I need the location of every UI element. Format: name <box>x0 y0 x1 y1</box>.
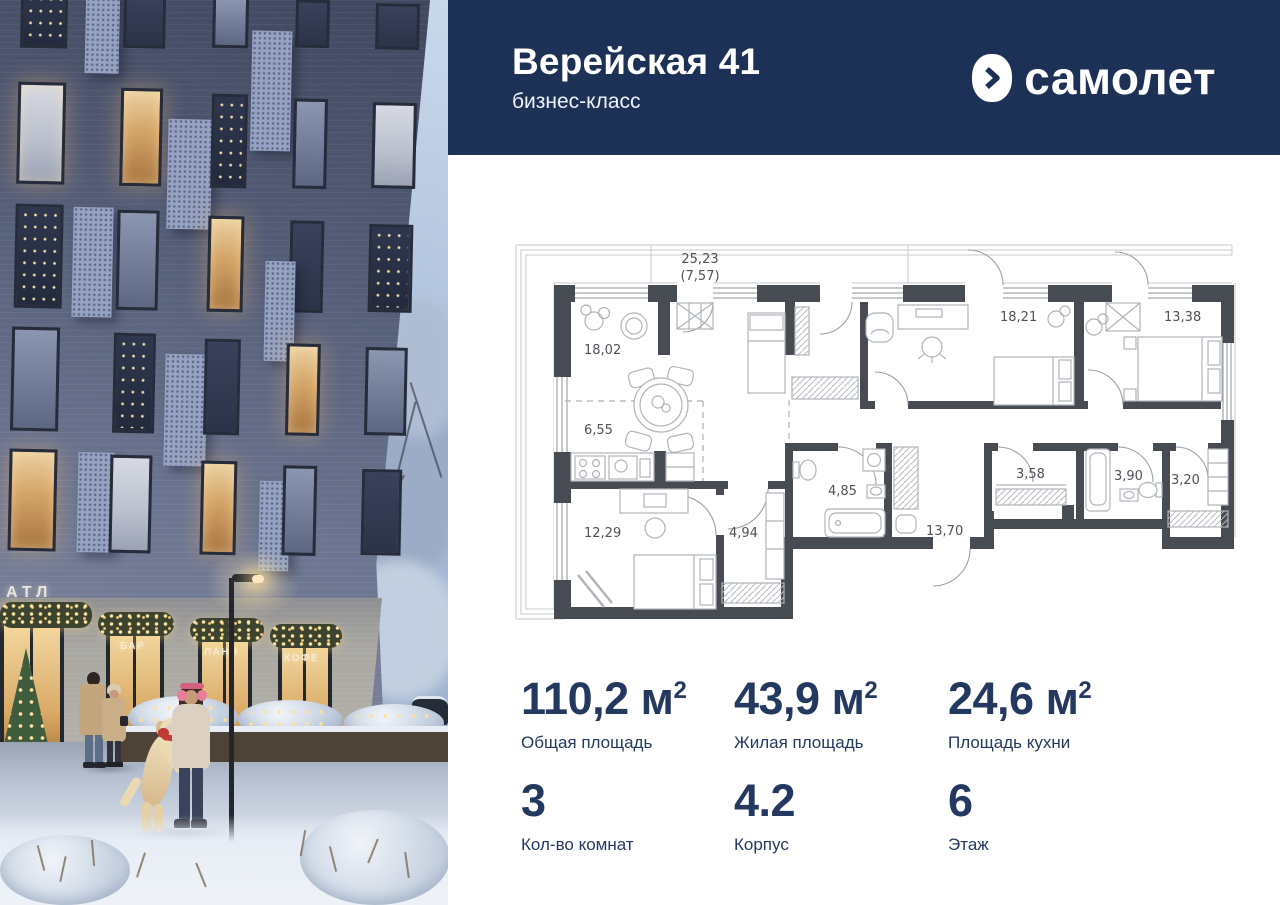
lamp-light <box>252 575 264 583</box>
facade-window <box>14 204 64 309</box>
armchair-icon <box>866 313 893 342</box>
facade-window <box>281 465 317 556</box>
samolet-arrow-icon <box>972 54 1012 102</box>
facade-window <box>20 0 68 49</box>
person-leg <box>192 768 203 820</box>
washing-machine-icon <box>863 449 885 471</box>
kitchen-counter-icon <box>571 453 654 481</box>
garland-lights <box>98 612 174 636</box>
sofa-bed-icon <box>748 313 785 393</box>
facade-window <box>375 3 420 50</box>
garland-lights <box>270 624 342 648</box>
lamp-glow <box>205 548 300 618</box>
earmuff <box>197 690 207 701</box>
bathtub-icon <box>825 509 885 537</box>
facade-window <box>368 224 414 313</box>
terrace-area-secondary-label: (7,57) <box>680 269 719 284</box>
facade-panel <box>71 207 113 318</box>
cabinet-icon <box>766 493 784 579</box>
stat-unit-sup: 2 <box>1078 677 1091 704</box>
toilet-icon <box>793 460 816 480</box>
facade-window <box>16 82 66 185</box>
fridge-icon <box>666 453 694 481</box>
page-title: Верейская 41 <box>512 41 760 83</box>
room-label-hall: 4,94 <box>729 526 758 541</box>
facade-window <box>119 88 163 187</box>
facade-window <box>108 455 152 554</box>
person-jacket <box>172 704 210 770</box>
stat-value: 43,9 <box>734 673 820 724</box>
room-label-bedroom2: 18,21 <box>1000 310 1037 325</box>
toilet-icon <box>1139 483 1162 498</box>
stat-label: Этаж <box>948 835 1278 855</box>
room-label-closet: 3,20 <box>1171 473 1200 488</box>
facade-window <box>207 216 245 313</box>
pouf-icon <box>896 515 916 533</box>
facade-panel <box>250 31 293 152</box>
facade-window <box>295 0 330 48</box>
stat-kitchen-area: 24,6 м2 Площадь кухни <box>948 676 1278 753</box>
stat-living-area: 43,9 м2 Жилая площадь <box>734 676 948 753</box>
wardrobe-hatch-icon <box>722 583 784 603</box>
stat-unit: м <box>832 673 865 724</box>
stat-label: Общая площадь <box>521 733 734 753</box>
stat-label: Кол-во комнат <box>521 835 734 855</box>
facade-window <box>212 0 249 48</box>
bed-icon <box>994 357 1074 405</box>
bookcase-icon <box>795 307 809 355</box>
double-bed-icon <box>1124 337 1222 401</box>
room-label-living: 18,02 <box>584 343 621 358</box>
building-sign: АТЛ <box>6 584 52 602</box>
hall-wardrobe-icon <box>894 447 918 509</box>
facade-window <box>116 210 160 311</box>
room-label-corridor: 13,70 <box>926 524 963 539</box>
facade-panel <box>166 119 212 230</box>
bathtub-icon <box>1086 449 1110 511</box>
plant-icon <box>581 305 610 330</box>
project-titles: Верейская 41 бизнес-класс <box>512 41 760 114</box>
stat-rooms: 3 Кол-во комнат <box>521 778 734 855</box>
shop-sign-coffee: КОФЕ <box>284 653 319 664</box>
room-label-kitchen: 6,55 <box>584 423 613 438</box>
garland-lights <box>0 602 92 628</box>
bed-icon <box>634 555 716 609</box>
person-leg <box>107 741 113 763</box>
shaft-icon <box>1106 303 1140 331</box>
desk-icon <box>898 305 968 363</box>
stat-unit: м <box>1046 673 1079 724</box>
red-mitten <box>158 728 169 738</box>
stat-value: 4.2 <box>734 778 948 823</box>
facade-panel <box>85 0 121 74</box>
stat-value: 110,2 <box>521 673 629 724</box>
stat-label: Жилая площадь <box>734 733 948 753</box>
shelving-icon <box>1168 449 1228 527</box>
pedestrian-woman <box>101 684 127 768</box>
shaft-steps-icon <box>677 303 713 329</box>
snowy-shrub <box>300 810 448 905</box>
facade-window <box>7 449 57 552</box>
stat-unit: м <box>641 673 674 724</box>
brand-name: самолет <box>1024 51 1216 105</box>
stat-value: 6 <box>948 778 1278 823</box>
ottoman-icon <box>621 313 647 339</box>
header: Верейская 41 бизнес-класс самолет <box>448 0 1280 155</box>
flat-card: АТЛ БАР ЛАНЧ КОФЕ <box>0 0 1280 905</box>
room-label-bathroom2: 3,90 <box>1114 469 1143 484</box>
stat-value: 3 <box>521 778 734 823</box>
person-shoe <box>114 762 123 767</box>
facade-window <box>210 94 248 189</box>
plant-icon <box>1048 306 1070 327</box>
wardrobe-hatch-icon <box>996 485 1066 505</box>
lobby-wardrobe-icon <box>792 377 858 399</box>
room-label-bedroom1: 12,29 <box>584 526 621 541</box>
earmuff-band <box>180 683 204 689</box>
facade-window <box>360 469 402 556</box>
earmuff <box>177 690 187 701</box>
stat-label: Площадь кухни <box>948 733 1278 753</box>
stat-total-area: 110,2 м2 Общая площадь <box>521 676 734 753</box>
facade-window <box>199 461 237 556</box>
room-label-bedroom3: 13,38 <box>1164 310 1201 325</box>
stat-label: Корпус <box>734 835 948 855</box>
washbasin-icon <box>1120 489 1138 501</box>
developer-logo: самолет <box>972 51 1216 105</box>
plant-icon <box>1086 314 1108 335</box>
snowy-shrub <box>0 835 130 905</box>
floor-plan: 25,23 (7,57) 18,02 6,55 12,29 4,94 4,85 … <box>508 237 1238 627</box>
facade-window <box>203 339 241 436</box>
dining-table-icon <box>624 366 694 454</box>
facade-window <box>364 347 408 436</box>
room-label-wardrobe: 3,58 <box>1016 467 1045 482</box>
page-subtitle: бизнес-класс <box>512 90 760 114</box>
room-label-bathroom1: 4,85 <box>828 484 857 499</box>
facade-window <box>292 98 328 189</box>
person-leg <box>85 735 93 763</box>
facade-window <box>123 0 166 49</box>
facade-panel <box>163 354 207 467</box>
facade-window <box>112 333 156 434</box>
terrace-area-label: 25,23 <box>681 252 718 267</box>
stat-unit-sup: 2 <box>864 677 877 704</box>
washbasin-icon <box>867 485 885 498</box>
facade-window <box>10 327 60 432</box>
facade-window <box>371 102 417 189</box>
skis-icon <box>578 571 612 607</box>
shop-sign-bar: БАР <box>120 641 145 652</box>
garland-lights <box>190 618 264 642</box>
stat-value: 24,6 <box>948 673 1034 724</box>
terrace-outline <box>516 245 1235 619</box>
facade-window <box>285 343 321 436</box>
person-leg <box>115 741 121 763</box>
stat-floor: 6 Этаж <box>948 778 1278 855</box>
desk-icon <box>620 489 688 538</box>
flat-stats: 110,2 м2 Общая площадь 43,9 м2 Жилая пло… <box>448 640 1280 905</box>
person-leg <box>179 768 190 820</box>
building-photo: АТЛ БАР ЛАНЧ КОФЕ <box>0 0 448 905</box>
stat-building: 4.2 Корпус <box>734 778 948 855</box>
stat-unit-sup: 2 <box>673 677 686 704</box>
